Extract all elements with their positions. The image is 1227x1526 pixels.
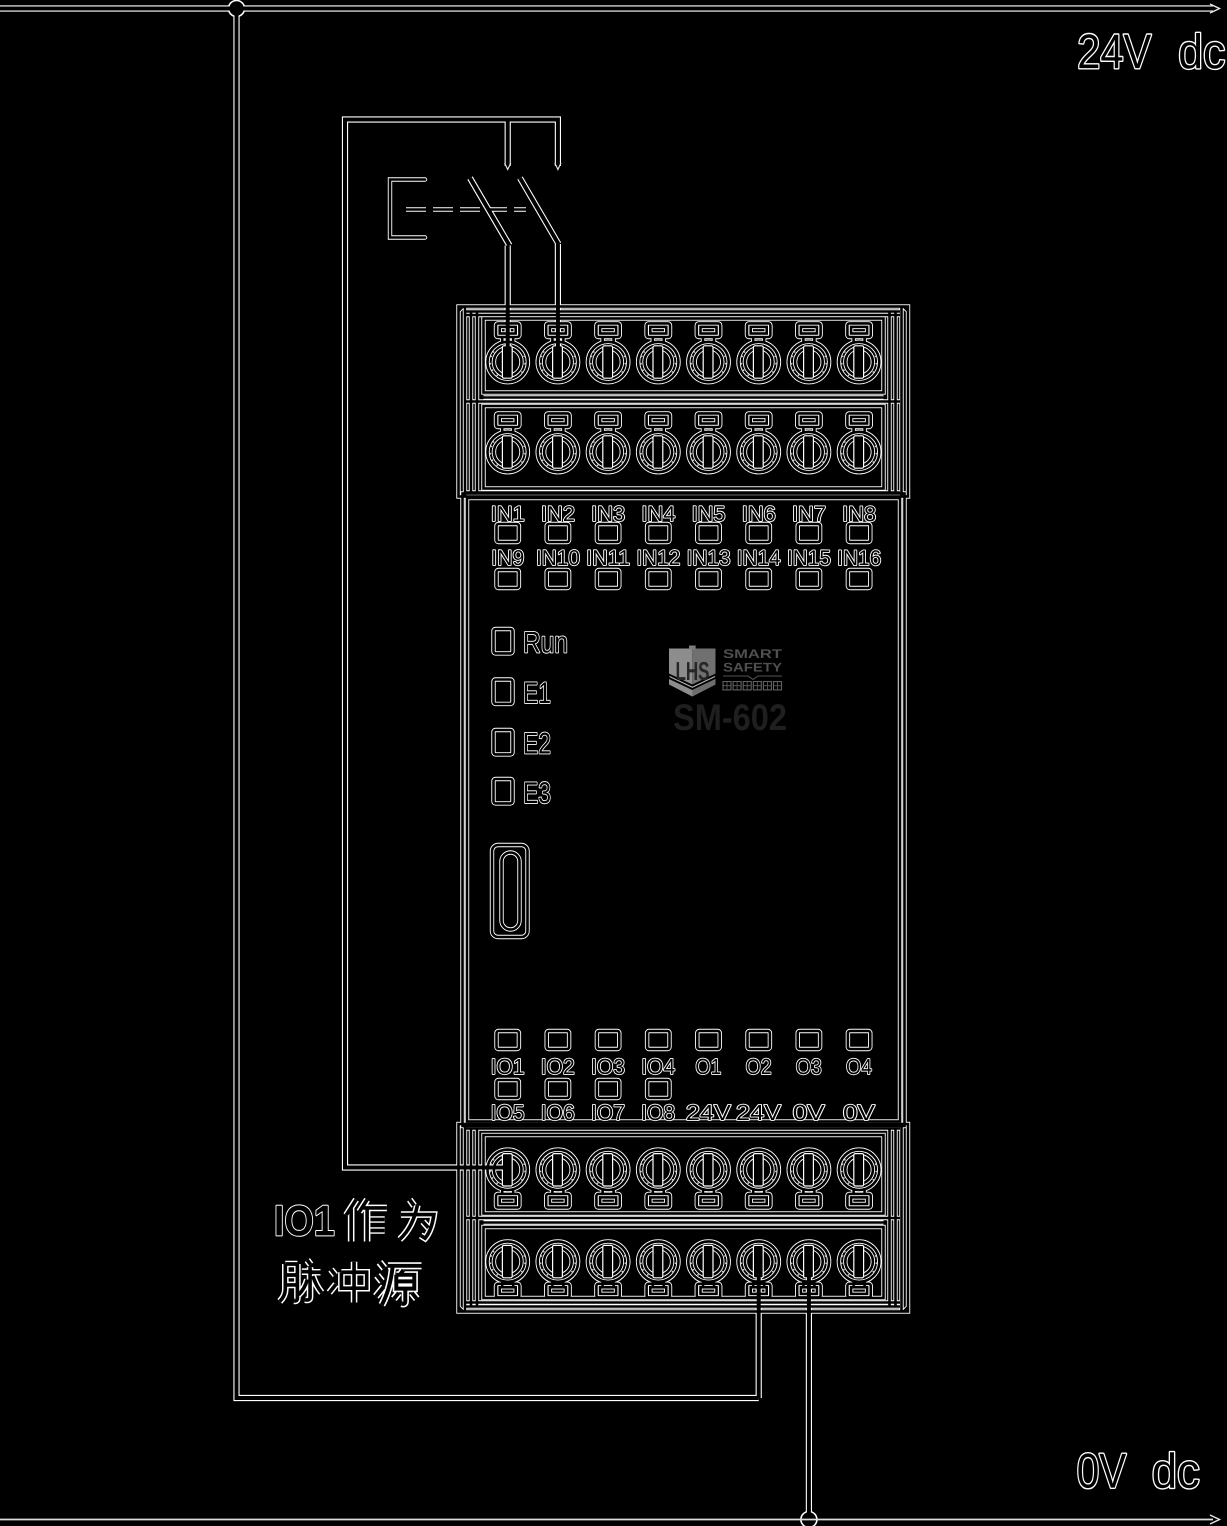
svg-text:IN11: IN11 [586, 546, 630, 570]
svg-text:0V: 0V [793, 1100, 825, 1125]
svg-text:0V: 0V [1077, 1445, 1127, 1499]
svg-text:IN2: IN2 [541, 502, 575, 526]
svg-text:E3: E3 [523, 777, 551, 810]
svg-text:dc: dc [1152, 1445, 1200, 1499]
svg-text:IN10: IN10 [536, 546, 580, 570]
svg-text:IO1: IO1 [491, 1054, 525, 1079]
svg-text:Run: Run [523, 626, 568, 659]
svg-text:IN16: IN16 [837, 546, 881, 570]
svg-text:24V: 24V [736, 1100, 781, 1125]
svg-text:IO1: IO1 [274, 1197, 335, 1245]
svg-text:O1: O1 [695, 1054, 721, 1079]
svg-text:24V: 24V [686, 1100, 731, 1125]
svg-text:E1: E1 [523, 677, 551, 710]
svg-text:LHS: LHS [676, 656, 710, 686]
svg-text:SMART: SMART [723, 647, 782, 661]
svg-text:IN13: IN13 [687, 546, 731, 570]
svg-text:E2: E2 [523, 727, 551, 760]
svg-text:IN1: IN1 [491, 502, 525, 526]
svg-text:IN12: IN12 [636, 546, 680, 570]
svg-text:IO8: IO8 [641, 1100, 675, 1125]
svg-text:IN7: IN7 [792, 502, 826, 526]
svg-text:IN15: IN15 [787, 546, 831, 570]
svg-text:IN14: IN14 [737, 546, 781, 570]
svg-text:IO3: IO3 [591, 1054, 625, 1079]
svg-text:IO5: IO5 [491, 1100, 525, 1125]
svg-text:dc: dc [1178, 25, 1225, 79]
svg-text:O4: O4 [846, 1054, 872, 1079]
svg-text:IO6: IO6 [541, 1100, 575, 1125]
svg-text:IO2: IO2 [541, 1054, 575, 1079]
svg-text:IN9: IN9 [491, 546, 524, 570]
svg-text:IN8: IN8 [842, 502, 876, 526]
svg-text:O3: O3 [796, 1054, 822, 1079]
svg-text:SAFETY: SAFETY [723, 660, 783, 674]
svg-text:0V: 0V [843, 1100, 875, 1125]
svg-text:IO7: IO7 [591, 1100, 625, 1125]
svg-text:24V: 24V [1077, 25, 1152, 79]
svg-text:O2: O2 [746, 1054, 772, 1079]
svg-text:IN4: IN4 [641, 502, 675, 526]
svg-text:IO4: IO4 [641, 1054, 675, 1079]
svg-text:IN5: IN5 [692, 502, 726, 526]
svg-text:IN6: IN6 [742, 502, 776, 526]
svg-text:IN3: IN3 [591, 502, 625, 526]
svg-text:SM-602: SM-602 [673, 697, 787, 738]
